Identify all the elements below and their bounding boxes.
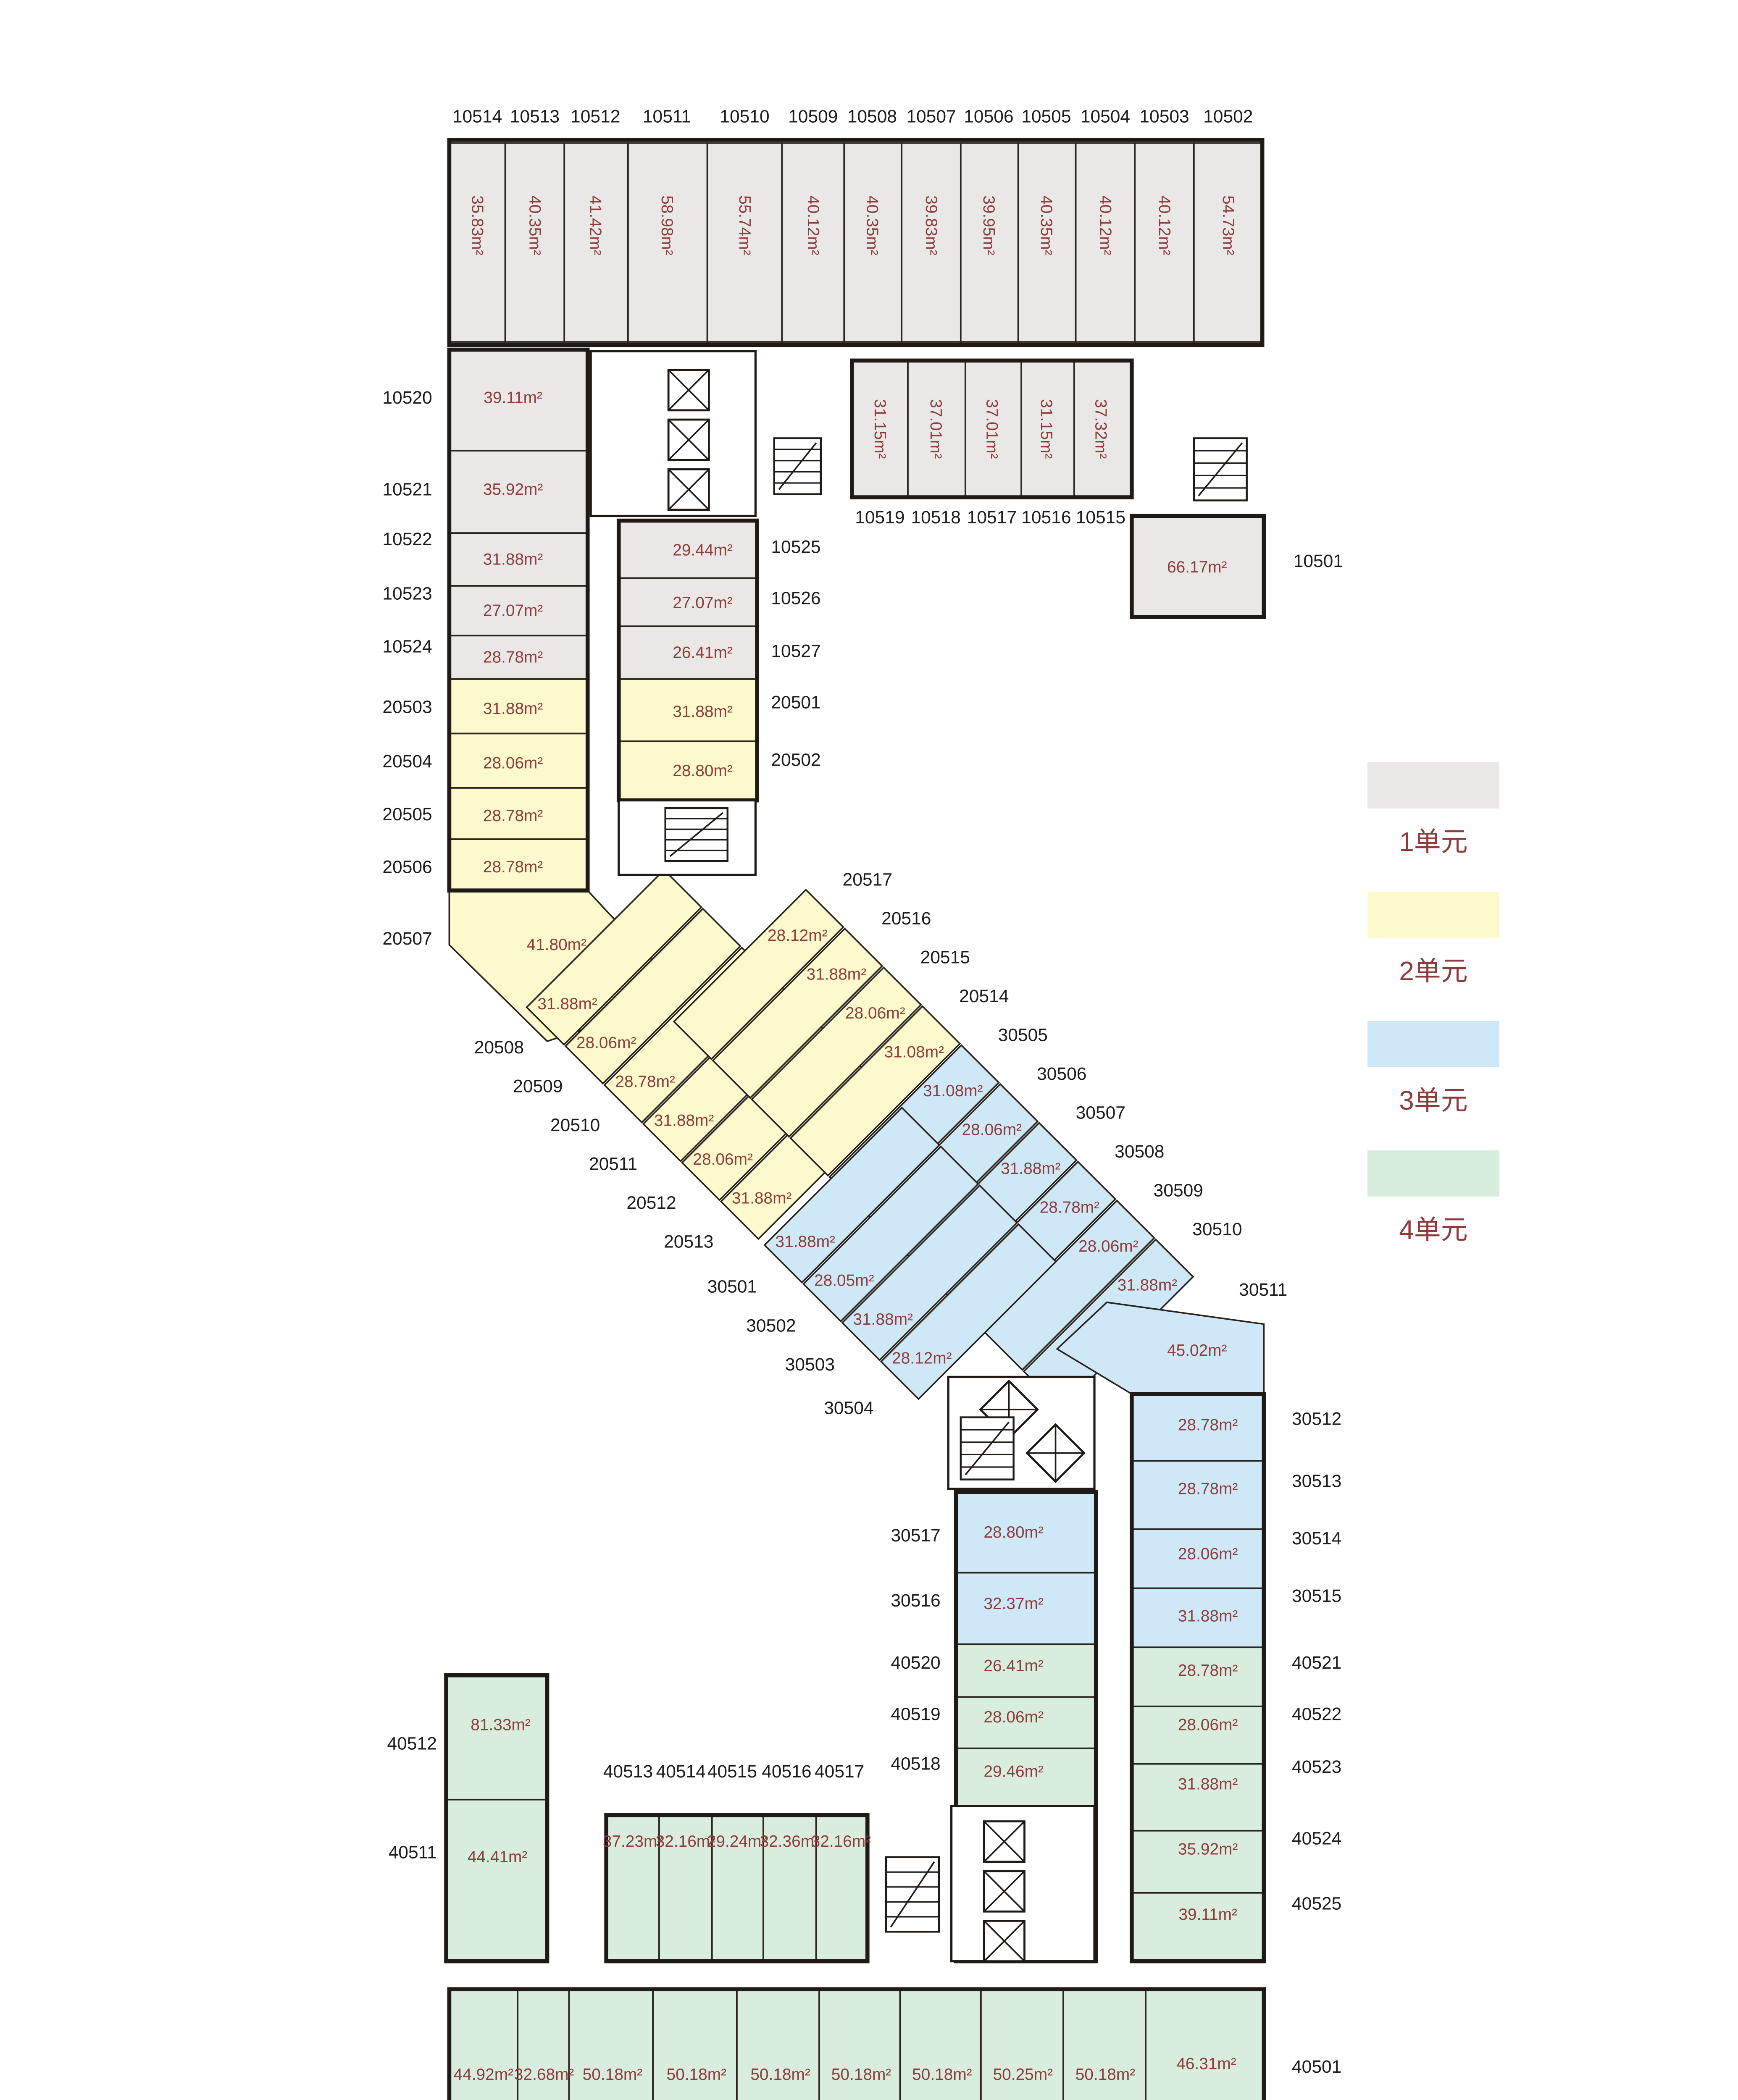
room-label: 10503 xyxy=(1139,107,1189,127)
room-area: 40.12m² xyxy=(804,195,822,255)
room-label: 20504 xyxy=(382,751,432,772)
room-label: 20505 xyxy=(382,804,432,824)
room-area: 50.18m² xyxy=(1075,2066,1136,2084)
room-label: 30514 xyxy=(1292,1528,1341,1549)
room-label: 20516 xyxy=(881,908,931,929)
legend-item: 4单元 xyxy=(1367,1150,1502,1247)
room-area: 31.08m² xyxy=(923,1082,983,1100)
room-label: 40516 xyxy=(762,1761,811,1782)
room-area: 31.15m² xyxy=(871,399,889,459)
room-label: 30513 xyxy=(1292,1471,1341,1491)
room-area: 50.18m² xyxy=(583,2066,643,2084)
room-area: 44.92m² xyxy=(454,2066,514,2084)
room-label: 40518 xyxy=(891,1754,940,1774)
room-label: 10515 xyxy=(1076,507,1125,528)
room-label: 10504 xyxy=(1081,107,1130,127)
room-area: 58.98m² xyxy=(658,195,676,255)
room-label: 30512 xyxy=(1292,1409,1341,1429)
room-label: 40511 xyxy=(389,1843,437,1863)
room-label: 40522 xyxy=(1292,1704,1341,1724)
room-label: 10508 xyxy=(847,107,897,127)
room-area: 35.92m² xyxy=(1178,1840,1238,1858)
room-label: 40523 xyxy=(1292,1757,1341,1777)
legend-swatch xyxy=(1367,1021,1499,1067)
room-label: 20512 xyxy=(626,1193,676,1213)
room-label: 40513 xyxy=(603,1761,653,1782)
room-area: 32.37m² xyxy=(983,1595,1044,1613)
room-area: 28.78m² xyxy=(1178,1416,1238,1434)
room-area: 31.08m² xyxy=(884,1043,944,1061)
room-label: 10522 xyxy=(382,529,432,549)
room-label: 20502 xyxy=(771,750,820,770)
room-label: 10519 xyxy=(855,507,904,528)
room-area: 40.35m² xyxy=(526,195,544,255)
room-area: 31.88m² xyxy=(654,1111,714,1129)
room-area: 41.80m² xyxy=(526,936,586,954)
legend-item: 1单元 xyxy=(1367,762,1502,859)
room-area: 31.88m² xyxy=(673,703,733,721)
room-area: 28.78m² xyxy=(615,1073,675,1091)
room-label: 20506 xyxy=(382,857,432,877)
room-area: 50.18m² xyxy=(912,2066,972,2084)
room-label: 10513 xyxy=(510,107,560,127)
room-area: 28.06m² xyxy=(983,1708,1044,1726)
room-label: 10507 xyxy=(906,107,956,127)
room-label: 30501 xyxy=(707,1277,757,1297)
room-area: 40.12m² xyxy=(1096,195,1114,255)
room-shape xyxy=(1132,1706,1264,1764)
room-area: 28.06m² xyxy=(693,1150,753,1168)
room-area: 31.88m² xyxy=(1001,1160,1061,1178)
room-label: 10501 xyxy=(1294,551,1343,571)
room-label: 10517 xyxy=(967,507,1017,528)
room-area: 28.06m² xyxy=(1078,1237,1139,1255)
room-area: 28.78m² xyxy=(1178,1662,1238,1680)
room-label: 10502 xyxy=(1203,107,1253,127)
room-area: 28.06m² xyxy=(483,754,543,772)
room-label: 10526 xyxy=(771,588,820,609)
room-area: 31.88m² xyxy=(732,1189,792,1207)
room-label: 20511 xyxy=(589,1154,637,1174)
room-area: 31.88m² xyxy=(483,700,543,718)
room-label: 30505 xyxy=(998,1025,1048,1045)
room-area: 66.17m² xyxy=(1167,558,1227,576)
room-area: 31.15m² xyxy=(1037,399,1055,459)
room-label: 10512 xyxy=(571,107,620,127)
room-label: 10520 xyxy=(382,388,432,408)
room-label: 20501 xyxy=(771,692,820,712)
room-area: 46.31m² xyxy=(1176,2055,1236,2073)
room-label: 40524 xyxy=(1292,1828,1341,1848)
room-label: 20517 xyxy=(843,869,892,890)
room-area: 39.95m² xyxy=(980,195,998,255)
room-label: 30508 xyxy=(1115,1142,1164,1162)
room-label: 20514 xyxy=(959,986,1009,1006)
room-area: 50.18m² xyxy=(831,2066,891,2084)
room-label: 30503 xyxy=(785,1354,835,1375)
room-area: 37.23m² xyxy=(603,1832,663,1851)
room-area: 31.88m² xyxy=(1117,1276,1178,1294)
room-area: 28.80m² xyxy=(673,762,733,780)
room-label: 40514 xyxy=(656,1761,706,1782)
room-label: 20508 xyxy=(474,1037,524,1058)
room-label: 40520 xyxy=(891,1653,940,1673)
room-area: 28.12m² xyxy=(768,927,828,945)
floor-plan-canvas: 1051435.83m²1051340.35m²1051241.42m²1051… xyxy=(0,0,1738,2100)
room-area: 40.35m² xyxy=(1037,195,1055,255)
room-label: 10527 xyxy=(771,641,820,661)
room-area: 35.92m² xyxy=(483,480,543,499)
room-area: 31.88m² xyxy=(853,1310,913,1328)
room-shape xyxy=(446,1675,547,1800)
room-area: 54.73m² xyxy=(1219,195,1237,255)
room-label: 10518 xyxy=(911,507,960,528)
room-area: 28.06m² xyxy=(576,1034,636,1052)
room-area: 55.74m² xyxy=(736,195,754,255)
room-label: 10521 xyxy=(382,480,432,500)
room-label: 10510 xyxy=(720,107,769,127)
room-label: 30515 xyxy=(1292,1586,1341,1606)
room-label: 20503 xyxy=(382,697,432,717)
room-label: 30502 xyxy=(746,1315,796,1336)
room-area: 28.78m² xyxy=(483,858,543,876)
room-area: 31.88m² xyxy=(776,1233,836,1251)
legend-item: 2单元 xyxy=(1367,892,1502,988)
room-label: 10511 xyxy=(643,107,691,127)
room-area: 28.78m² xyxy=(483,807,543,825)
room-area: 32.68m² xyxy=(514,2066,574,2084)
room-area: 29.44m² xyxy=(673,541,733,559)
room-area: 28.05m² xyxy=(814,1271,874,1289)
room-label: 20507 xyxy=(382,929,432,949)
room-shape xyxy=(1132,1764,1264,1831)
room-label: 40512 xyxy=(387,1734,436,1754)
room-area: 35.83m² xyxy=(468,195,486,255)
room-area: 28.06m² xyxy=(845,1004,905,1022)
room-label: 20515 xyxy=(920,947,970,967)
room-label: 30517 xyxy=(891,1525,940,1546)
room-area: 28.06m² xyxy=(962,1121,1022,1139)
room-shape xyxy=(1146,1989,1264,2100)
room-area: 28.80m² xyxy=(983,1523,1044,1541)
legend-swatch xyxy=(1367,892,1499,938)
room-label: 20509 xyxy=(513,1076,563,1096)
room-label: 30504 xyxy=(824,1398,873,1418)
room-area: 31.88m² xyxy=(483,551,543,569)
room-area: 31.88m² xyxy=(1178,1775,1238,1793)
legend-swatch xyxy=(1367,1150,1499,1197)
room-area: 50.18m² xyxy=(750,2066,810,2084)
legend: 1单元2单元3单元4单元 xyxy=(1367,762,1502,1280)
room-area: 28.78m² xyxy=(1178,1480,1238,1498)
room-area: 31.88m² xyxy=(807,966,867,984)
room-label: 40519 xyxy=(891,1704,940,1724)
room-area: 28.78m² xyxy=(1040,1199,1100,1217)
room-area: 40.35m² xyxy=(863,195,881,255)
room-label: 40517 xyxy=(815,1761,864,1782)
legend-label: 1单元 xyxy=(1367,820,1499,859)
room-label: 10509 xyxy=(788,107,838,127)
legend-item: 3单元 xyxy=(1367,1021,1502,1118)
room-label: 30516 xyxy=(891,1591,940,1611)
room-label: 30509 xyxy=(1154,1180,1203,1200)
room-area: 45.02m² xyxy=(1167,1341,1227,1360)
room-area: 27.07m² xyxy=(673,594,733,612)
room-area: 50.25m² xyxy=(993,2066,1053,2084)
room-label: 10523 xyxy=(382,583,432,604)
room-area: 37.32m² xyxy=(1091,399,1110,459)
room-area: 26.41m² xyxy=(983,1657,1044,1675)
room-area: 40.12m² xyxy=(1155,195,1173,255)
room-area: 32.16m² xyxy=(811,1832,871,1851)
legend-label: 4单元 xyxy=(1367,1208,1499,1247)
room-area: 28.06m² xyxy=(1178,1545,1238,1563)
room-area: 39.11m² xyxy=(484,389,542,407)
legend-label: 2单元 xyxy=(1367,950,1499,988)
room-area: 31.88m² xyxy=(1178,1607,1238,1625)
room-area: 44.41m² xyxy=(468,1848,528,1866)
room-label: 10514 xyxy=(452,107,502,127)
room-label: 20513 xyxy=(664,1231,713,1252)
room-label: 40525 xyxy=(1292,1894,1341,1914)
room-label: 40521 xyxy=(1292,1653,1341,1673)
room-area: 26.41m² xyxy=(673,644,733,662)
room-label: 40501 xyxy=(1292,2057,1341,2077)
room-label: 10516 xyxy=(1021,507,1071,528)
room-area: 39.83m² xyxy=(922,195,940,255)
room-area: 41.42m² xyxy=(586,195,605,255)
room-area: 28.78m² xyxy=(483,648,543,667)
room-label: 10525 xyxy=(771,537,820,557)
room-label: 30507 xyxy=(1076,1102,1125,1123)
room-label: 10506 xyxy=(964,107,1013,127)
room-label: 20510 xyxy=(550,1115,600,1135)
room-label: 30506 xyxy=(1037,1064,1086,1084)
room-area: 28.12m² xyxy=(892,1349,952,1367)
room-shape xyxy=(446,1800,547,1961)
room-label: 10505 xyxy=(1021,107,1071,127)
room-area: 81.33m² xyxy=(471,1716,531,1734)
room-area: 37.01m² xyxy=(927,399,945,459)
room-label: 30511 xyxy=(1239,1280,1287,1300)
room-area: 29.46m² xyxy=(983,1763,1044,1781)
room-area: 27.07m² xyxy=(483,602,543,620)
room-label: 30510 xyxy=(1192,1219,1242,1239)
legend-swatch xyxy=(1367,762,1499,808)
room-area: 39.11m² xyxy=(1178,1906,1237,1924)
room-shape xyxy=(1132,1893,1264,1961)
legend-label: 3单元 xyxy=(1367,1079,1499,1118)
room-area: 29.24m² xyxy=(707,1832,767,1851)
room-area: 28.06m² xyxy=(1178,1716,1238,1734)
room-area: 50.18m² xyxy=(667,2066,727,2084)
room-area: 31.88m² xyxy=(537,995,597,1013)
room-area: 37.01m² xyxy=(983,399,1001,459)
room-label: 40515 xyxy=(707,1761,757,1782)
room-label: 10524 xyxy=(382,636,432,656)
